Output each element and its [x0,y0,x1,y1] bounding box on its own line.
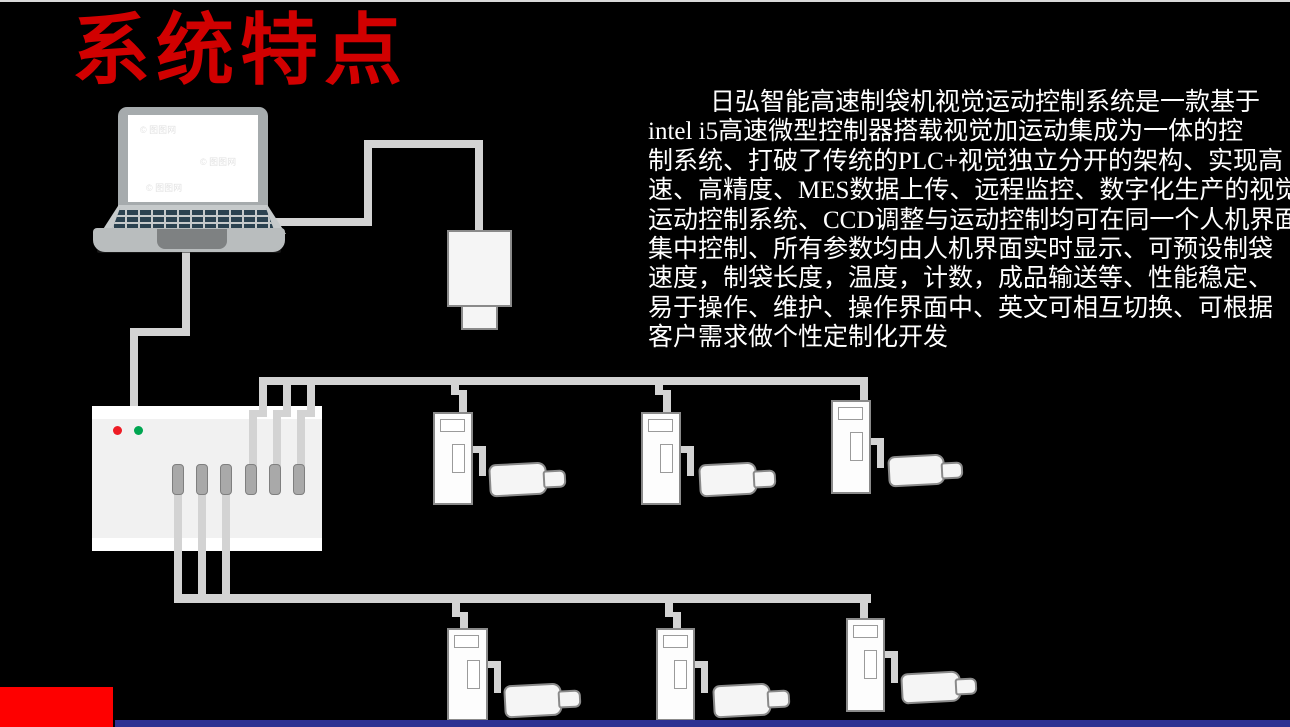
cable-segment [273,414,281,466]
motor-icon [488,462,548,498]
cable-segment [364,140,372,226]
slide: 系统特点 日弘智能高速制袋机视觉运动控制系统是一款基于intel i5高速微型控… [0,0,1290,727]
watermark: © 图图网 [140,123,176,136]
power-led-red [113,426,122,435]
cable-segment [891,651,898,683]
cable-segment [452,601,460,617]
io-connector [196,464,208,495]
motor-icon [712,683,772,719]
motor-icon [698,462,758,498]
cable-segment [475,142,483,234]
cable-segment [297,414,305,466]
servo-driver [433,412,473,505]
cable-segment [174,484,182,603]
paragraph-line: 客户需求做个性定制化开发 [648,323,1290,352]
driver-connector-slot [850,432,863,461]
paragraph-line: 易于操作、维护、操作界面中、英文可相互切换、可根据 [648,294,1290,323]
motor-shaft-cap [767,689,791,708]
cable-segment [364,140,483,148]
cable-segment [182,250,190,336]
servo-driver [641,412,681,505]
cable-segment [860,601,868,619]
motor-shaft-cap [543,469,567,488]
motor-icon [503,683,563,719]
laptop-screen: © 图图网 © 图图网 © 图图网 [128,115,258,202]
motor-shaft-cap [558,689,582,708]
motor-shaft-cap [753,469,777,488]
cable-segment [494,661,501,693]
cable-segment [673,612,681,629]
paragraph-line: 速度，制袋长度，温度，计数，成品输送等、性能稳定、 [648,264,1290,293]
driver-connector-slot [674,660,687,689]
io-connector [245,464,257,495]
status-led-green [134,426,143,435]
io-connector [172,464,184,495]
driver-connector-slot [660,444,673,473]
driver-label-plate [454,635,479,648]
motor-icon [887,454,946,488]
top-bus-cable [259,377,868,385]
driver-label-plate [440,419,465,432]
servo-driver [846,618,885,712]
motor-shaft-cap [955,677,978,695]
driver-connector-slot [864,650,877,679]
motor-icon [900,670,962,704]
cable-segment [130,330,138,408]
paragraph-line: intel i5高速微型控制器搭载视觉加运动集成为一体的控 [648,117,1290,146]
laptop-keyboard [112,208,274,230]
servo-driver [831,400,871,494]
cable-segment [877,438,884,468]
driver-connector-slot [452,444,465,473]
servo-driver [656,628,695,721]
cable-segment [198,484,206,603]
io-connector [293,464,305,495]
motor-shaft-cap [941,461,964,479]
driver-label-plate [838,407,863,420]
cable-segment [663,390,671,413]
cable-segment [249,414,257,466]
cable-segment [860,383,868,401]
cable-segment [130,328,190,336]
paragraph-line: 制系统、打破了传统的PLC+视觉独立分开的架构、实现高 [648,147,1290,176]
paragraph-line: 日弘智能高速制袋机视觉运动控制系统是一款基于 [648,88,1290,117]
cable-segment [701,661,708,693]
io-connector [269,464,281,495]
cable-segment [665,601,673,617]
controller-bottom-bar [92,538,322,551]
cable-segment [460,612,468,629]
servo-driver [447,628,488,721]
paragraph-line: 集中控制、所有参数均由人机界面实时显示、可预设制袋 [648,235,1290,264]
driver-label-plate [663,635,688,648]
camera-lens [461,305,498,330]
slide-top-border [0,0,1290,2]
driver-label-plate [648,419,673,432]
laptop-trackpad [157,229,227,249]
cable-segment [222,484,230,603]
watermark: © 图图网 [200,155,236,168]
driver-connector-slot [467,660,480,689]
footer-blue-bar [115,720,1290,727]
page-title: 系统特点 [72,8,408,92]
cable-segment [272,218,372,226]
camera-body [447,230,512,307]
paragraph-line: 运动控制系统、CCD调整与运动控制均可在同一个人机界面 [648,206,1290,235]
cable-segment [479,446,486,476]
io-connector [220,464,232,495]
cable-segment [687,446,694,476]
driver-label-plate [853,625,878,638]
footer-red-block [0,687,113,727]
watermark: © 图图网 [146,181,182,194]
description-paragraph: 日弘智能高速制袋机视觉运动控制系统是一款基于intel i5高速微型控制器搭载视… [648,88,1290,353]
bottom-bus-cable [174,594,871,603]
cable-segment [459,390,467,413]
paragraph-line: 速、高精度、MES数据上传、远程监控、数字化生产的视觉 [648,176,1290,205]
